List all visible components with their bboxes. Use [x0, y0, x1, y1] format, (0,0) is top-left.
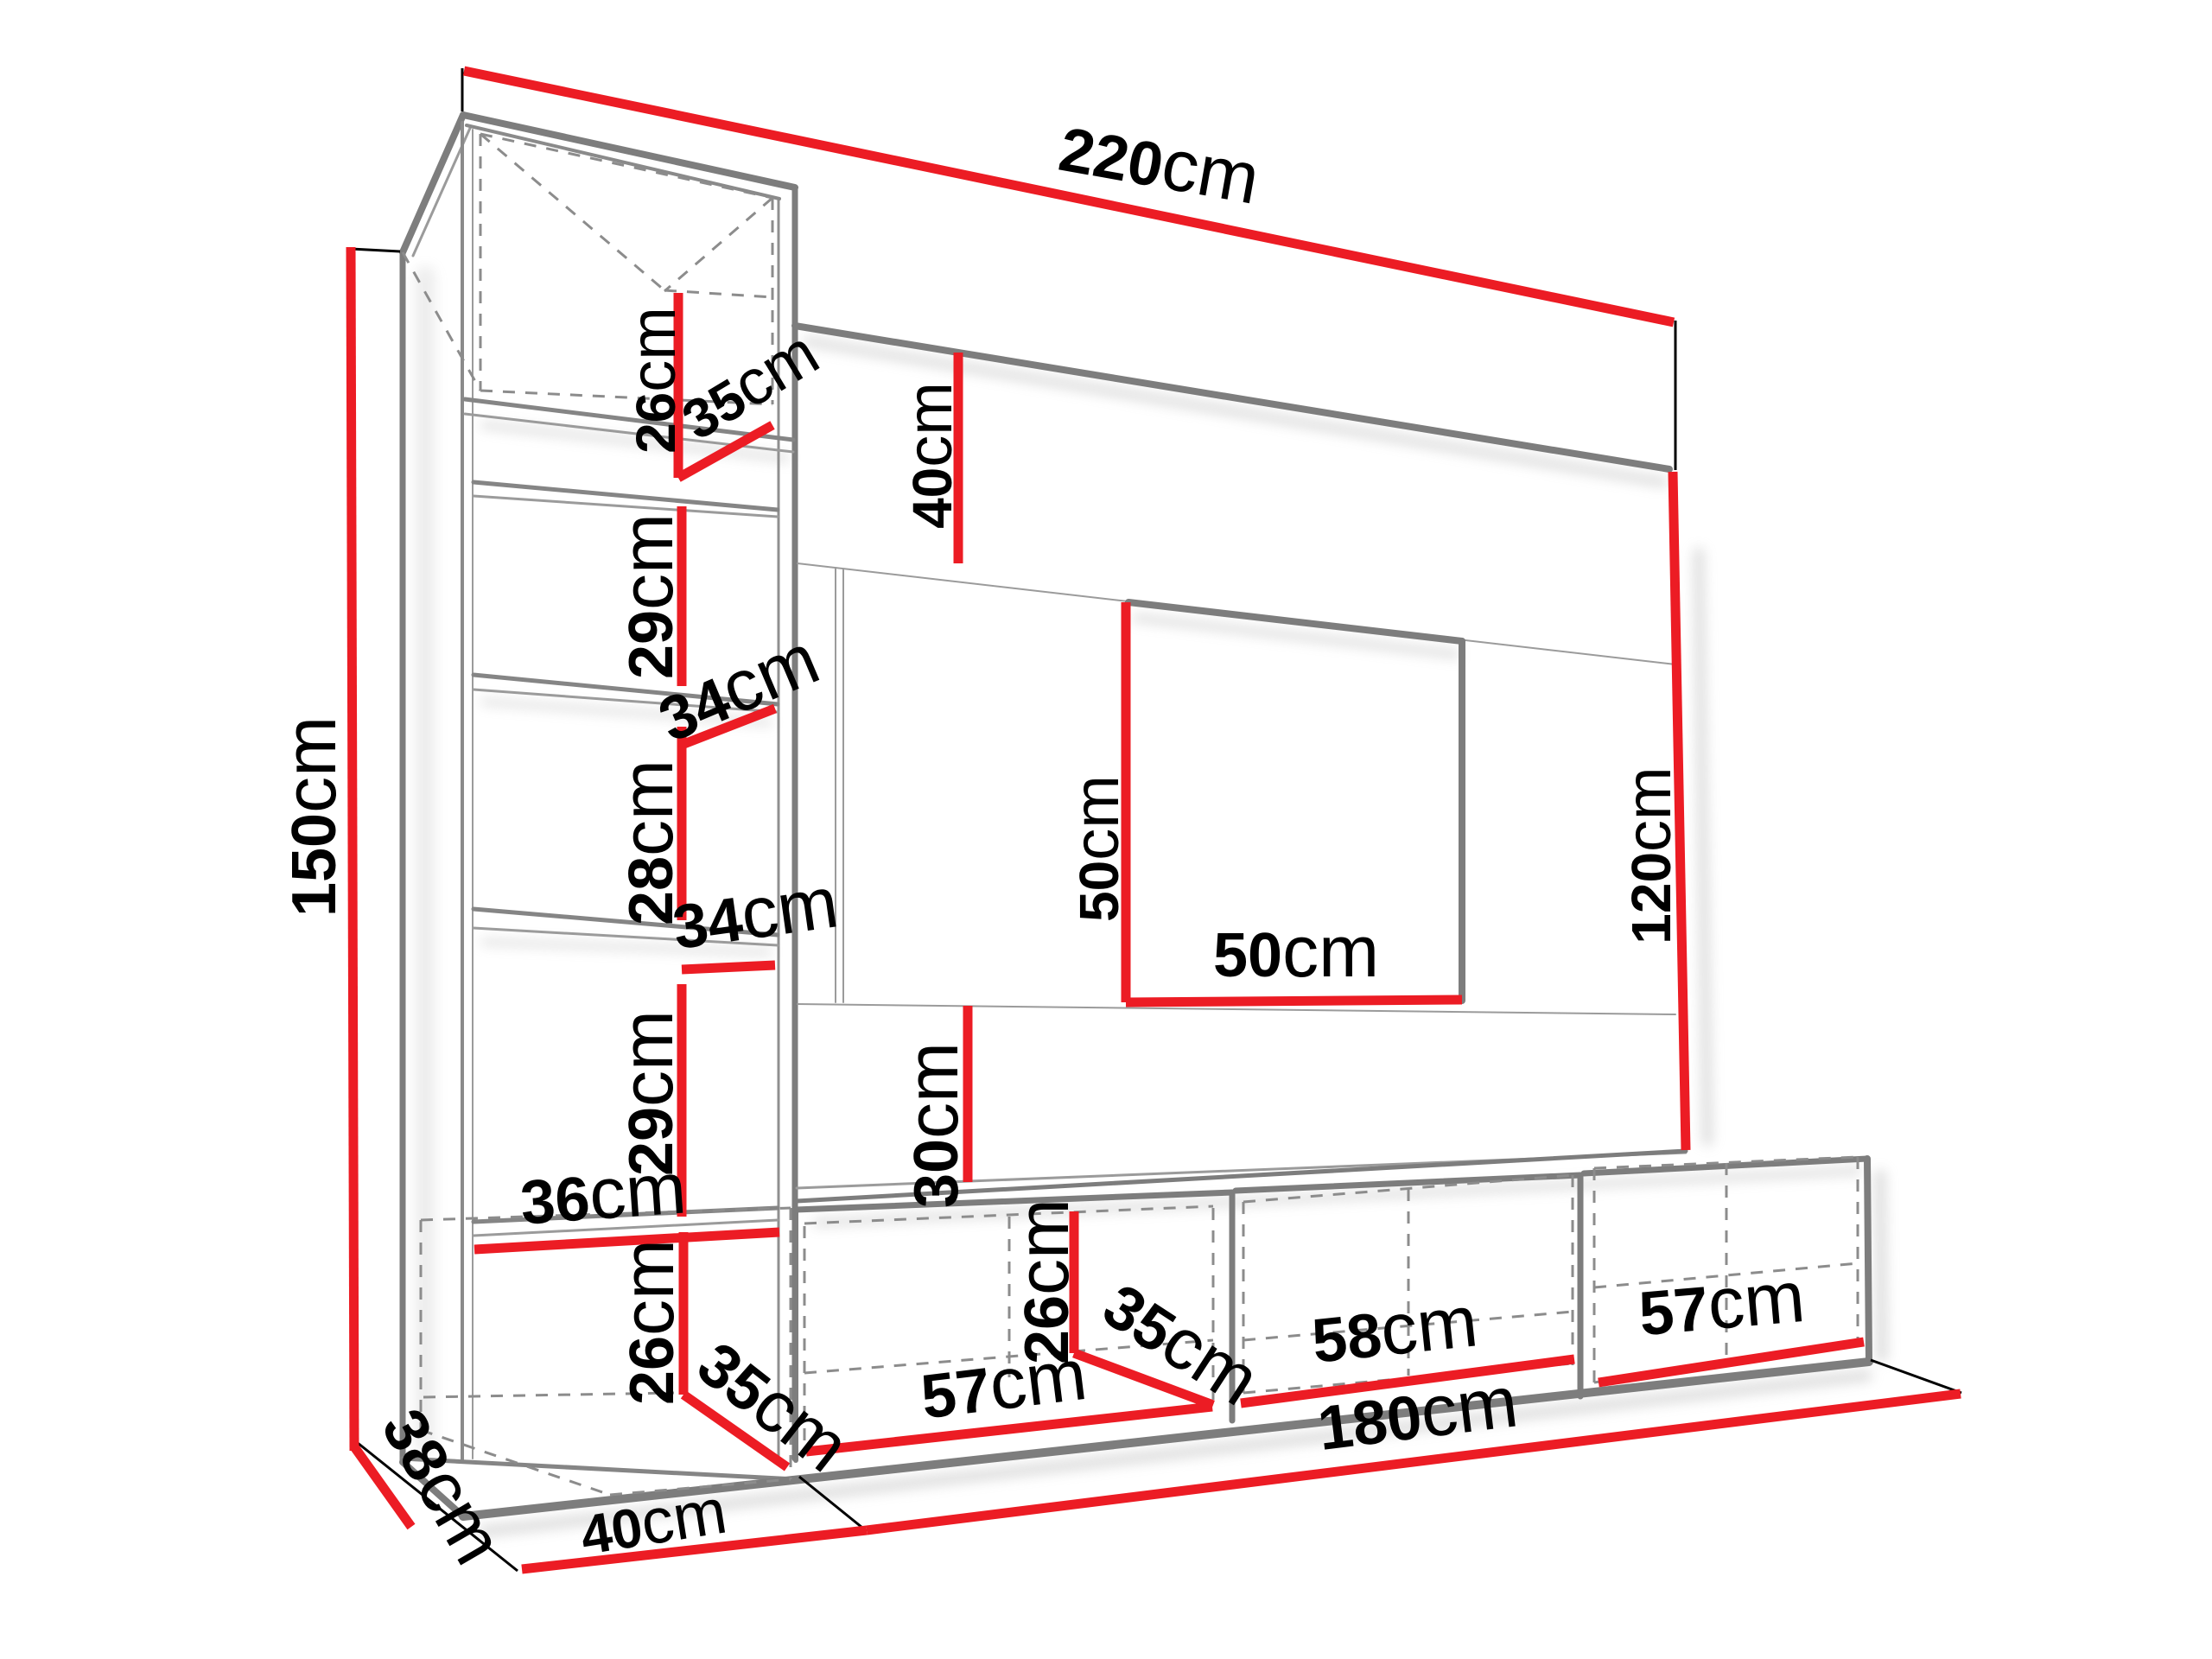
svg-text:26cm: 26cm [1002, 1198, 1084, 1364]
svg-text:29cm: 29cm [607, 513, 688, 679]
svg-text:50cm: 50cm [1213, 911, 1379, 992]
svg-text:150cm: 150cm [270, 716, 351, 917]
svg-text:40cm: 40cm [893, 382, 965, 529]
svg-text:120cm: 120cm [1612, 766, 1684, 944]
svg-text:50cm: 50cm [1060, 775, 1132, 922]
svg-text:26cm: 26cm [607, 1239, 689, 1405]
svg-text:30cm: 30cm [892, 1042, 973, 1208]
svg-text:26cm: 26cm [617, 307, 689, 454]
